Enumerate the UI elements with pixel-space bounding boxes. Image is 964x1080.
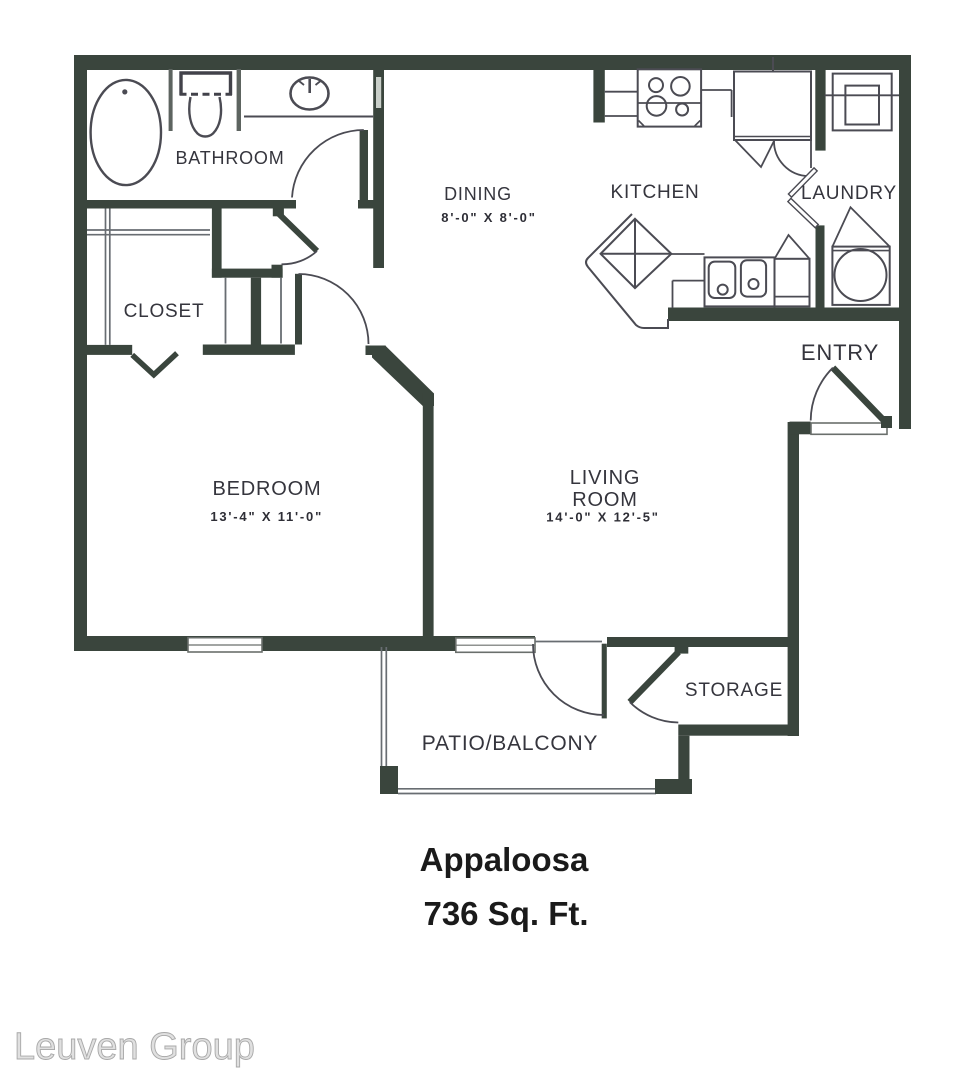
svg-text:ENTRY: ENTRY [801, 340, 879, 365]
svg-text:CLOSET: CLOSET [124, 301, 205, 322]
svg-text:8'-0" X 8'-0": 8'-0" X 8'-0" [441, 210, 536, 225]
svg-text:Appaloosa: Appaloosa [420, 841, 589, 878]
svg-text:736 Sq. Ft.: 736 Sq. Ft. [423, 895, 588, 932]
svg-text:PATIO/BALCONY: PATIO/BALCONY [422, 732, 599, 755]
svg-text:DINING: DINING [444, 184, 512, 204]
svg-text:STORAGE: STORAGE [685, 680, 783, 701]
svg-text:Leuven Group: Leuven Group [14, 1026, 255, 1068]
svg-text:LAUNDRY: LAUNDRY [801, 183, 897, 204]
svg-text:LIVING: LIVING [570, 467, 640, 489]
svg-text:BEDROOM: BEDROOM [213, 478, 322, 500]
svg-text:13'-4" X 11'-0": 13'-4" X 11'-0" [210, 509, 323, 524]
svg-text:BATHROOM: BATHROOM [175, 148, 284, 168]
svg-text:14'-0" X 12'-5": 14'-0" X 12'-5" [546, 510, 659, 525]
svg-text:ROOM: ROOM [572, 489, 637, 511]
svg-text:KITCHEN: KITCHEN [611, 182, 700, 203]
